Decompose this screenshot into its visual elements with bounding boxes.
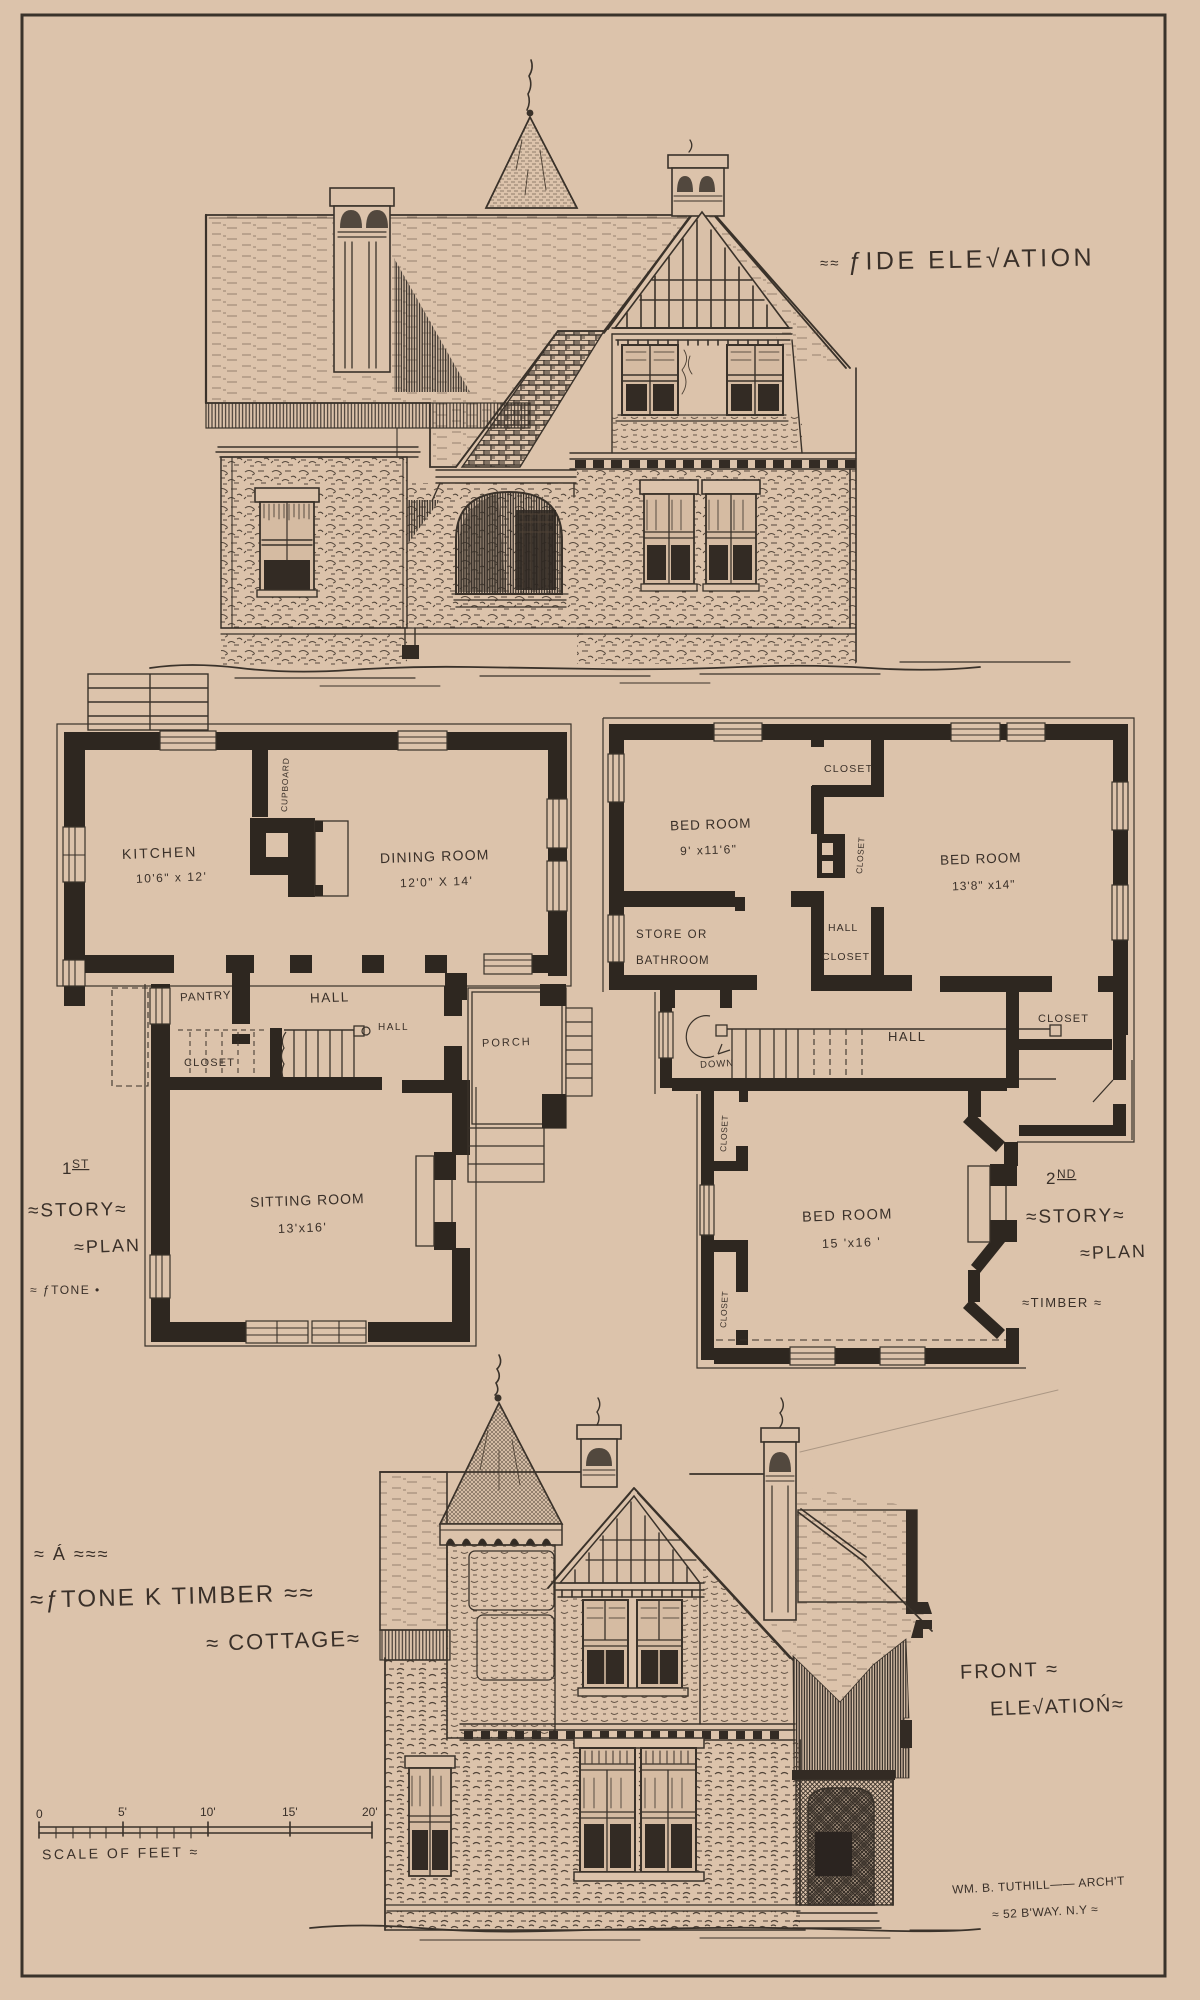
svg-text:1: 1 bbox=[62, 1159, 72, 1178]
svg-text:ND: ND bbox=[1057, 1167, 1076, 1181]
svg-text:9' x11'6": 9' x11'6" bbox=[680, 842, 738, 858]
svg-text:15 'x16 ': 15 'x16 ' bbox=[822, 1235, 882, 1251]
svg-text:2: 2 bbox=[1046, 1169, 1056, 1188]
svg-text:DOWN: DOWN bbox=[700, 1058, 735, 1071]
svg-text:≈STORY≈: ≈STORY≈ bbox=[1026, 1205, 1126, 1228]
svg-text:PORCH: PORCH bbox=[482, 1036, 532, 1050]
svg-text:CUPBOARD: CUPBOARD bbox=[279, 757, 291, 812]
svg-text:BED ROOM: BED ROOM bbox=[940, 850, 1022, 868]
svg-text:CLOSET: CLOSET bbox=[184, 1057, 235, 1069]
svg-text:SCALE OF FEET ≈: SCALE OF FEET ≈ bbox=[42, 1844, 200, 1863]
svg-text:≈PLAN: ≈PLAN bbox=[74, 1235, 142, 1257]
svg-text:HALL: HALL bbox=[378, 1022, 409, 1033]
svg-text:HALL: HALL bbox=[310, 989, 350, 1005]
svg-text:≈ ƒTONE •: ≈ ƒTONE • bbox=[30, 1283, 101, 1297]
svg-text:FRONT ≈: FRONT ≈ bbox=[960, 1658, 1060, 1683]
svg-text:12'0" X 14': 12'0" X 14' bbox=[400, 874, 474, 891]
svg-text:CLOSET: CLOSET bbox=[718, 1115, 730, 1152]
svg-text:ƒIDE ELE√ATION: ƒIDE ELE√ATION bbox=[848, 243, 1095, 275]
svg-text:13'8" x14": 13'8" x14" bbox=[952, 877, 1016, 893]
svg-text:≈≈: ≈≈ bbox=[820, 255, 841, 272]
svg-text:≈STORY≈: ≈STORY≈ bbox=[28, 1199, 128, 1222]
svg-text:ELE√ATIOŃ≈: ELE√ATIOŃ≈ bbox=[990, 1693, 1125, 1721]
svg-text:10': 10' bbox=[200, 1805, 216, 1819]
svg-text:13'x16': 13'x16' bbox=[278, 1220, 328, 1236]
svg-text:KITCHEN: KITCHEN bbox=[122, 843, 198, 862]
svg-text:HALL: HALL bbox=[888, 1029, 927, 1044]
svg-text:BATHROOM: BATHROOM bbox=[636, 955, 710, 967]
svg-text:20': 20' bbox=[362, 1805, 378, 1819]
svg-text:BED ROOM: BED ROOM bbox=[802, 1206, 893, 1225]
svg-text:CLOSET: CLOSET bbox=[822, 951, 870, 963]
svg-text:CLOSET: CLOSET bbox=[1038, 1013, 1089, 1025]
svg-text:ST: ST bbox=[72, 1157, 89, 1171]
svg-text:CLOSET: CLOSET bbox=[718, 1291, 730, 1328]
svg-text:≈ Á ≈≈≈: ≈ Á ≈≈≈ bbox=[34, 1544, 110, 1564]
svg-text:BED ROOM: BED ROOM bbox=[670, 816, 752, 834]
svg-text:10'6" x 12': 10'6" x 12' bbox=[136, 869, 208, 885]
svg-text:≈TIMBER ≈: ≈TIMBER ≈ bbox=[1022, 1295, 1103, 1310]
svg-text:15': 15' bbox=[282, 1805, 298, 1819]
svg-text:HALL: HALL bbox=[828, 922, 858, 934]
svg-text:0: 0 bbox=[36, 1807, 43, 1821]
svg-text:5': 5' bbox=[118, 1805, 127, 1819]
svg-text:STORE OR: STORE OR bbox=[636, 929, 708, 941]
svg-text:≈PLAN: ≈PLAN bbox=[1080, 1241, 1148, 1263]
svg-text:CLOSET: CLOSET bbox=[824, 763, 873, 775]
